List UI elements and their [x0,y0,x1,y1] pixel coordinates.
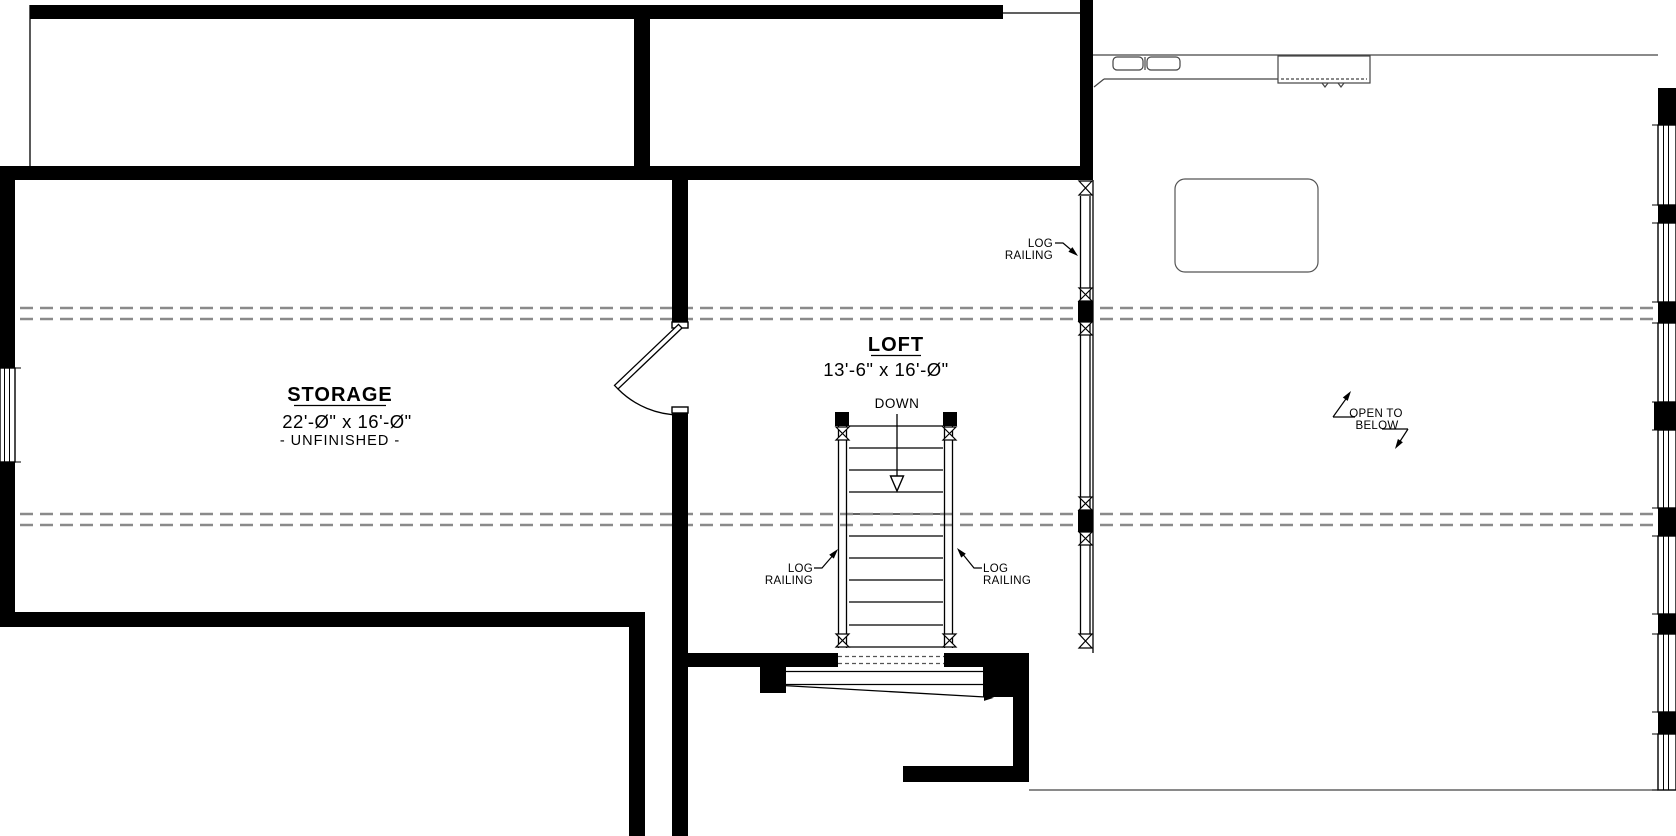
right-interior-wall [1013,653,1029,782]
storage-room-label: STORAGE [287,384,393,406]
svg-text:OPEN TO: OPEN TO [1349,408,1402,420]
stair-left-railing [835,412,849,648]
right-window [1652,734,1676,790]
svg-text:RAILING: RAILING [1005,250,1053,262]
attic-divider-wall [634,19,650,166]
svg-text:RAILING: RAILING [765,575,813,587]
log-railing-leader-top [1055,243,1078,256]
storage-dimensions: 22'-Ø" x 16'-Ø" [282,411,411,432]
log-railing-leader-left [814,549,838,568]
left-window [0,368,21,462]
loft-room-label: LOFT [868,334,924,356]
kitchen-below [1029,55,1658,790]
svg-text:BELOW: BELOW [1355,420,1398,432]
down-label: DOWN [875,396,920,411]
svg-text:RAILING: RAILING [983,575,1031,587]
right-window [1652,634,1676,712]
left-wall-lower [0,462,15,627]
kitchen-sink [1113,57,1180,70]
storage-door [615,322,689,415]
walls [0,0,1093,836]
top-wall [30,5,1003,19]
log-railing-label-right: LOG RAILING [983,563,1031,587]
loft-dimensions: 13'-6" x 16'-Ø" [823,359,948,380]
storage-note: - UNFINISHED - [280,433,400,449]
log-railing-label-top: LOG RAILING [1005,238,1053,262]
break-line [774,685,985,697]
loft-bottom-wall-left [672,653,838,667]
right-wall-windows [1652,88,1676,790]
door-leaf [615,324,683,389]
right-window [1652,430,1676,508]
stair-treads [849,426,943,647]
storage-bottom-wall [0,612,645,627]
loft-log-railing [1078,180,1093,653]
storage-top-wall [0,166,1093,180]
upper-right-wall [1080,0,1093,180]
open-to-below-label: OPEN TO BELOW [1349,408,1402,432]
stair-right-railing [943,412,957,648]
kitchen-range [1278,56,1370,87]
right-window [1652,323,1676,402]
svg-text:LOG: LOG [788,563,813,575]
svg-text:LOG: LOG [1028,238,1053,250]
center-wall-upper [672,180,688,322]
dining-table-below [1175,179,1318,272]
svg-text:LOG: LOG [983,563,1008,575]
log-railing-leader-right [957,548,982,568]
lower-room-wall [903,766,1029,782]
center-wall-lower [672,413,688,836]
left-wall-upper [0,166,15,368]
hall-wall [629,612,645,836]
floor-plan-drawing: STORAGE 22'-Ø" x 16'-Ø" - UNFINISHED - L… [0,0,1676,836]
log-railing-label-left: LOG RAILING [765,563,813,587]
floor-plan: STORAGE 22'-Ø" x 16'-Ø" - UNFINISHED - L… [0,0,1676,836]
stairwell-left-wall-below [760,667,786,693]
right-window [1652,125,1676,205]
right-window [1652,223,1676,302]
right-window [1652,536,1676,614]
